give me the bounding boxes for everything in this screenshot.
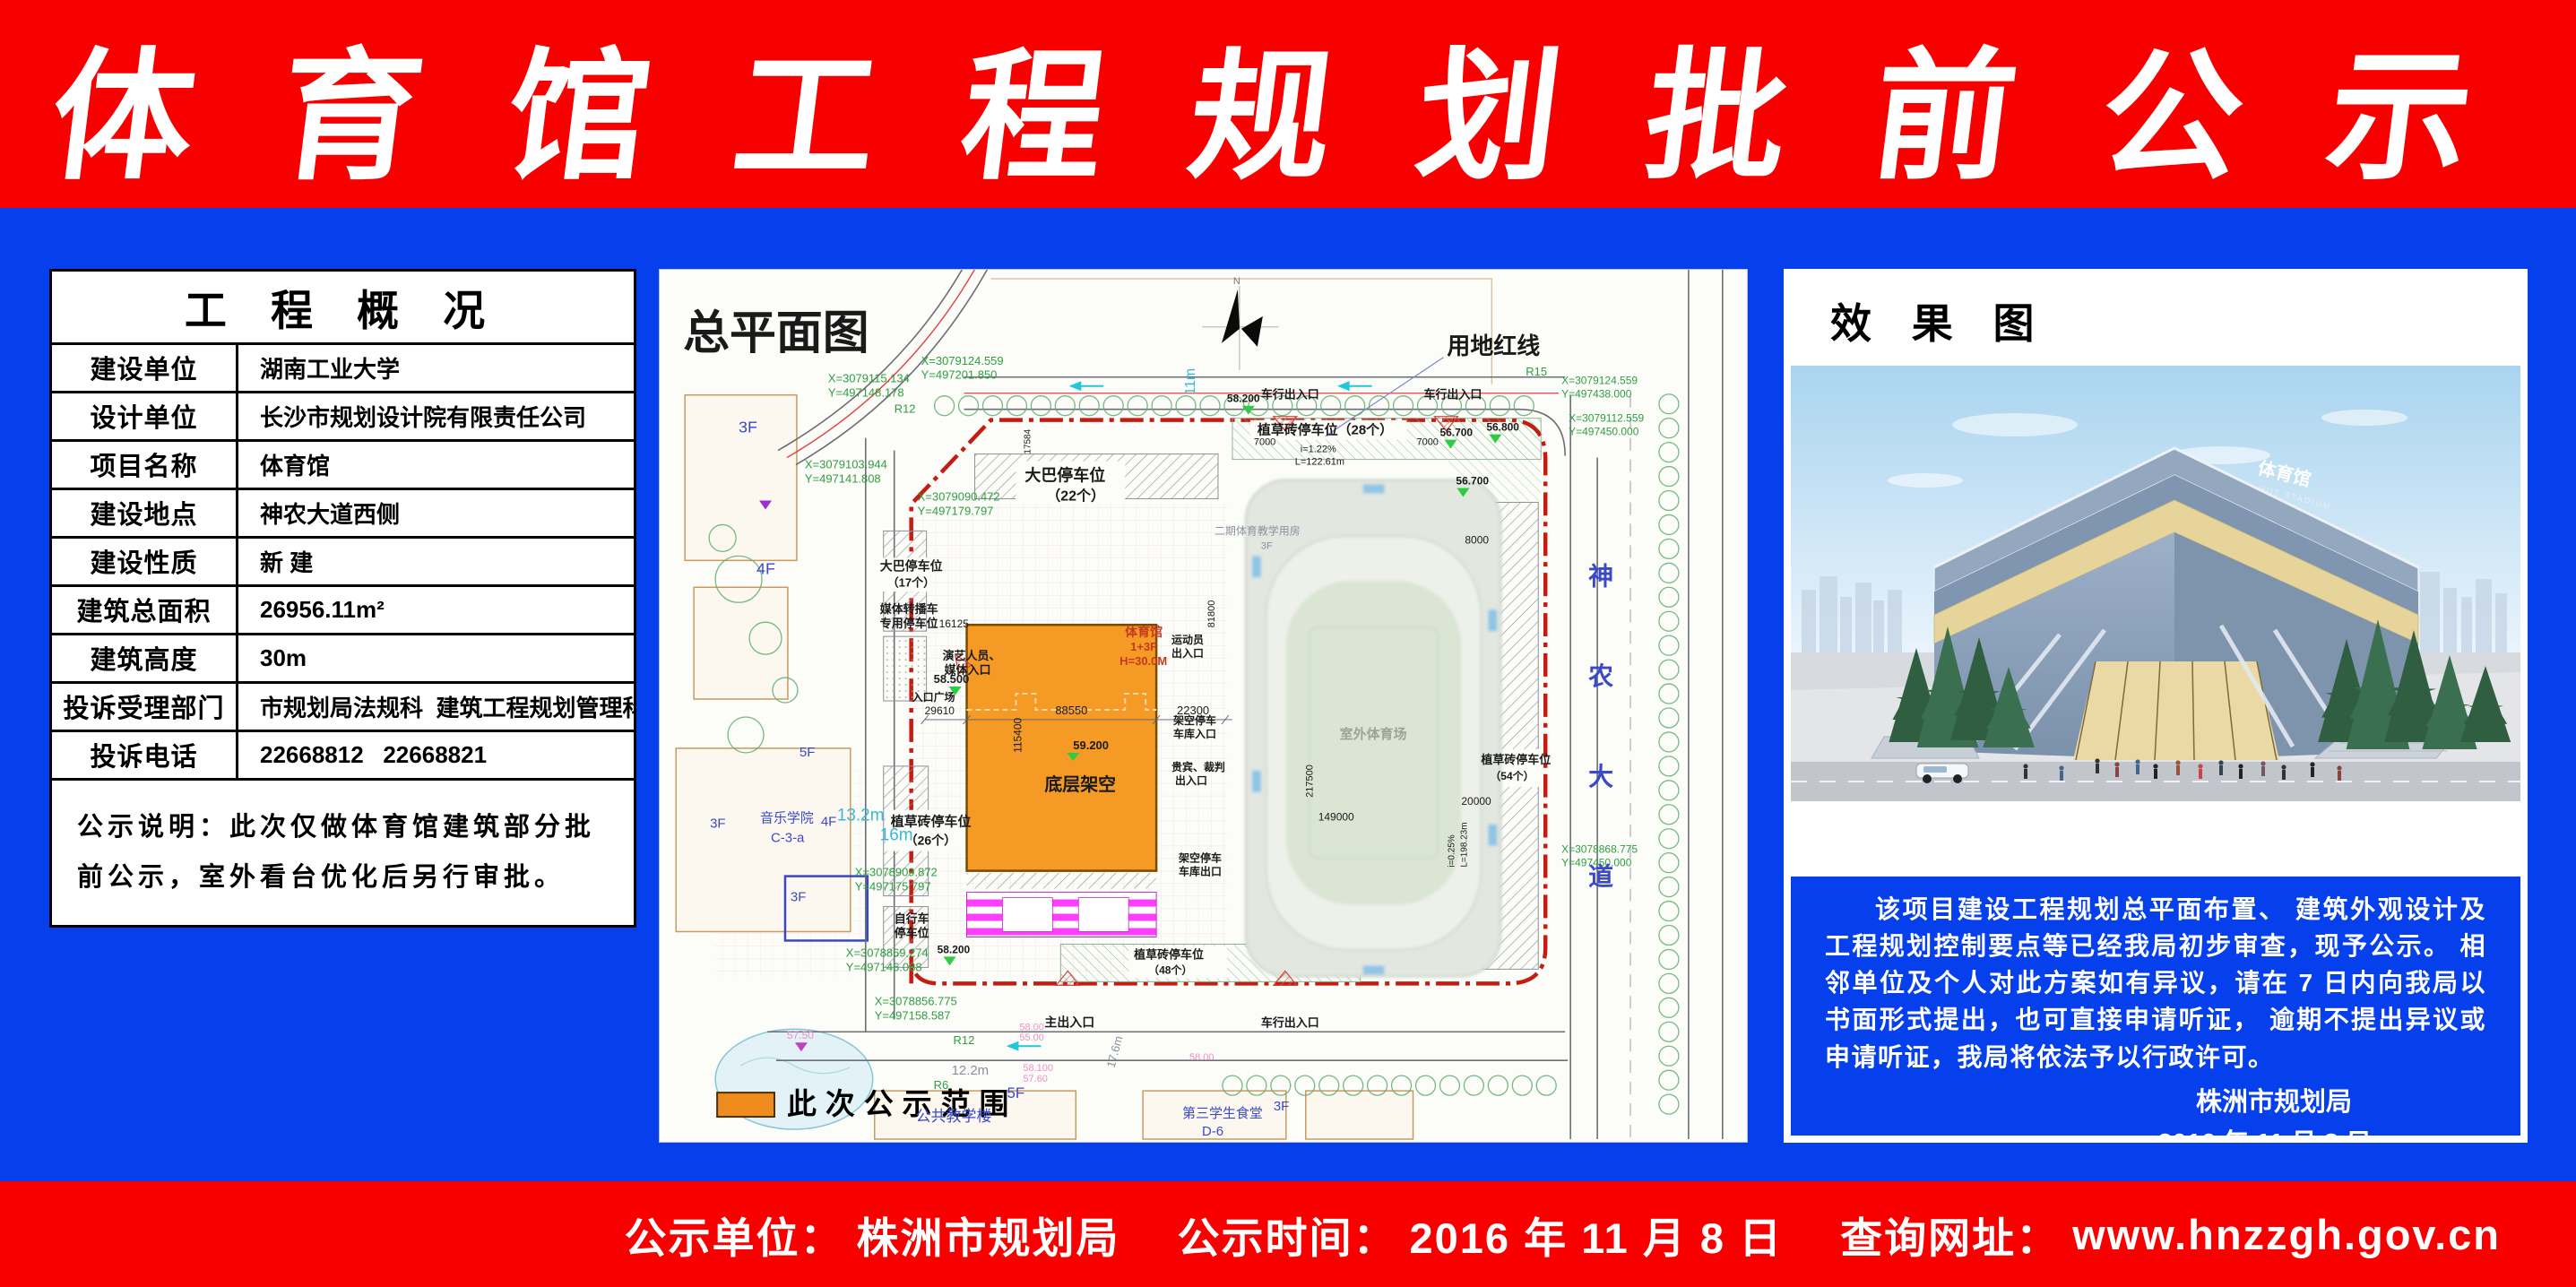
map-label: Y=497175.797 (855, 880, 931, 894)
footer-item: 查询网址：www.hnzzgh.gov.cn (1840, 1204, 2501, 1265)
footer: 公示单位：株洲市规划局公示时间：2016 年 11 月 8 日查询网址：www.… (0, 1181, 2576, 1287)
table-row: 设计单位长沙市规划设计院有限责任公司 (52, 391, 634, 439)
map-label: 58.200 (1227, 393, 1260, 405)
map-label: 车行出入口 (1261, 1015, 1319, 1029)
map-label: 贵宾、裁判 (1171, 760, 1225, 773)
map-legend-swatch (717, 1093, 774, 1117)
footer-label: 公示时间： (1177, 1204, 1396, 1265)
footer-value: 2016 年 11 月 8 日 (1409, 1204, 1783, 1265)
map-label: 16m (880, 826, 913, 845)
map-label: 81800 (1206, 600, 1217, 628)
map-label: 大巴停车位 (880, 558, 943, 573)
map-label: 5F (1007, 1084, 1024, 1101)
map-label: 车库出口 (1179, 865, 1222, 878)
map-label: 植草砖停车位 (1480, 753, 1551, 766)
map-label: 专用停车位 (880, 617, 938, 630)
map-label: 入口广场 (912, 690, 955, 704)
map-label: Y=497201.850 (921, 368, 998, 382)
footer-item: 公示单位：株洲市规划局 (624, 1204, 1119, 1265)
table-row: 投诉电话22668812 22668821 (52, 730, 634, 778)
map-label: 17584 (1023, 428, 1033, 453)
map-label: 大 (1588, 763, 1613, 790)
row-value: 体育馆 (236, 442, 634, 488)
map-label: 3F (710, 816, 725, 832)
map-label: X=3078869.274 (846, 946, 929, 959)
map-label: 3F (1261, 540, 1273, 551)
map-label: 115400 (1011, 717, 1024, 752)
row-label: 设计单位 (52, 393, 236, 439)
siteplan-drawing: 此次公示范围 总平面图用地红线NX=3079124.559Y=497201.85… (660, 270, 1747, 1142)
map-label: 自行车 (895, 912, 929, 926)
map-label: 用地红线 (1447, 333, 1540, 359)
map-label: 二期体育教学用房 (1215, 523, 1301, 537)
table-row: 投诉受理部门市规划局法规科 建筑工程规划管理科 (52, 681, 634, 730)
map-label: N (1233, 276, 1240, 287)
map-label: Y=497146.088 (846, 960, 922, 973)
map-label: X=3079090.472 (918, 489, 1000, 503)
map-label: 4F (756, 559, 775, 577)
table-row: 项目名称体育馆 (52, 439, 634, 488)
map-label: 58.00 (1019, 1022, 1043, 1032)
map-label: i=1.22% (1301, 445, 1336, 455)
row-label: 建设性质 (52, 539, 236, 584)
row-label: 建设地点 (52, 490, 236, 536)
map-label: 7000 (1417, 437, 1439, 448)
map-label: 29610 (925, 704, 955, 717)
overview-title: 工 程 概 况 (52, 272, 634, 342)
table-row: 建筑总面积26956.11m² (52, 584, 634, 633)
map-label: 3F (1274, 1099, 1289, 1114)
map-label: 58.500 (934, 672, 970, 686)
map-label: 3F (791, 890, 806, 905)
map-label: L=122.61m (1295, 457, 1344, 468)
rendering-panel: 效 果 图 (1784, 269, 2528, 1143)
footer-label: 查询网址： (1840, 1204, 2060, 1265)
banner: 体育馆工程规划批前公示 (0, 0, 2576, 208)
map-label: 20000 (1461, 795, 1491, 808)
map-label: （22个） (1046, 487, 1105, 504)
map-label: 57.50 (787, 1029, 814, 1041)
photo-margin (1791, 801, 2520, 877)
map-label: 7000 (1254, 437, 1275, 448)
map-label: Y=497450.000 (1569, 426, 1639, 438)
map-label: Y=497438.000 (1561, 388, 1632, 401)
map-label: 57.60 (1023, 1074, 1047, 1084)
row-label: 建筑高度 (52, 635, 236, 681)
map-label: （17个） (887, 575, 935, 589)
map-label: 媒体转播车 (880, 602, 938, 616)
map-label: D-6 (1202, 1124, 1223, 1139)
map-label: X=3079115.134 (828, 372, 910, 385)
map-label: 出入口 (1175, 773, 1207, 787)
overview-panel: 工 程 概 况 建设单位湖南工业大学设计单位长沙市规划设计院有限责任公司项目名称… (49, 269, 636, 928)
map-label: 3F (739, 419, 757, 436)
map-label: X=3079103.944 (805, 458, 887, 471)
signature: 株洲市规划局 (1825, 1081, 2486, 1119)
map-label: 农 (1588, 661, 1613, 690)
row-label: 投诉电话 (52, 732, 236, 778)
map-label: 56.700 (1439, 427, 1473, 439)
map-label: X=3078909.872 (855, 866, 938, 879)
adjacent-plot-line (990, 279, 1491, 384)
map-label: 音乐学院 (760, 810, 814, 826)
signature-date: 2016 年 11 月 8 日 (1825, 1122, 2486, 1136)
map-label: Y=497179.797 (918, 504, 994, 517)
map-label: 55.00 (1019, 1032, 1043, 1043)
footer-value: www.hnzzgh.gov.cn (2072, 1210, 2501, 1259)
map-label: 5F (800, 745, 815, 760)
overview-note: 公示说明：此次仅做体育馆建筑部分批前公示，室外看台优化后另行审批。 (52, 778, 634, 925)
map-label: 神 (1588, 562, 1613, 590)
map-label: 运动员 (1171, 634, 1204, 646)
map-label: i=0.25% (1447, 834, 1457, 867)
notice-paragraph: 该项目建设工程规划总平面布置、 建筑外观设计及工程规划控制要点等已经我局初步审查… (1825, 891, 2486, 1075)
map-label: H=30.0M (1119, 654, 1167, 668)
map-label: 停车位 (895, 926, 929, 939)
map-label: X=3079112.559 (1569, 412, 1644, 425)
north-arrow-icon (1202, 286, 1279, 370)
rendering-title: 效 果 图 (1791, 276, 2520, 366)
map-label: 149000 (1318, 811, 1354, 824)
map-label: 56.800 (1486, 421, 1519, 434)
row-value: 26956.11m² (236, 587, 634, 633)
map-label: 59.200 (1073, 739, 1109, 752)
map-label: R6 (934, 1078, 949, 1092)
row-value: 新 建 (236, 539, 634, 584)
map-label: 演艺人员、 (943, 649, 1001, 662)
map-label: 体育馆 (1125, 625, 1163, 639)
map-label: 4F (821, 815, 836, 830)
footer-item: 公示时间：2016 年 11 月 8 日 (1177, 1204, 1783, 1265)
map-label: 架空停车 (1172, 713, 1216, 727)
row-label: 建设单位 (52, 345, 236, 391)
table-row: 建筑高度30m (52, 633, 634, 681)
map-label: （48个） (1148, 963, 1192, 976)
map-label: 道 (1588, 862, 1613, 891)
map-label: C-3-a (771, 831, 805, 846)
row-value: 长沙市规划设计院有限责任公司 (236, 393, 634, 439)
building-illustration: 体育馆 HUT STADIUM (1791, 366, 2520, 801)
map-label: Y=497158.587 (875, 1008, 951, 1022)
map-label: 车库入口 (1173, 727, 1216, 740)
table-row: 建设单位湖南工业大学 (52, 342, 634, 391)
map-label: 217500 (1305, 764, 1316, 798)
row-label: 项目名称 (52, 442, 236, 488)
map-label: X=3078856.775 (875, 994, 957, 1007)
banner-title: 体育馆工程规划批前公示 (5, 2, 2571, 207)
row-label: 投诉受理部门 (52, 684, 236, 730)
map-label: 58.100 (1023, 1063, 1053, 1074)
map-label: 12.2m (952, 1063, 990, 1078)
map-label: R12 (954, 1033, 975, 1047)
map-label: （54个） (1490, 769, 1534, 782)
map-label: 第三学生食堂 (1182, 1105, 1263, 1121)
map-label: 植草砖停车位（28个） (1257, 422, 1393, 438)
map-label: 8000 (1465, 533, 1489, 546)
map-label: 架空停车 (1178, 851, 1222, 865)
row-value: 30m (236, 635, 634, 681)
footer-label: 公示单位： (624, 1204, 843, 1265)
map-label: X=3078868.775 (1561, 843, 1638, 856)
map-label: R12 (895, 402, 916, 416)
map-label: 植草砖停车位 (1133, 947, 1204, 961)
siteplan-panel: 此次公示范围 总平面图用地红线NX=3079124.559Y=497201.85… (659, 269, 1748, 1143)
map-label: R15 (1526, 365, 1547, 378)
map-label: Y=497148.178 (828, 386, 904, 400)
table-row: 建设性质新 建 (52, 536, 634, 584)
map-label: Y=497141.808 (805, 472, 881, 486)
map-label: X=3079124.559 (921, 354, 1004, 367)
map-label: 58.00 (1189, 1052, 1214, 1063)
footer-value: 株洲市规划局 (856, 1204, 1119, 1265)
map-label: 底层架空 (1044, 773, 1116, 795)
notice-board: 体育馆工程规划批前公示 工 程 概 况 建设单位湖南工业大学设计单位长沙市规划设… (0, 0, 2576, 1287)
row-value: 神农大道西侧 (236, 490, 634, 536)
row-value: 市规划局法规科 建筑工程规划管理科 (236, 684, 634, 730)
map-label: 总平面图 (683, 307, 869, 358)
row-value: 22668812 22668821 (236, 732, 634, 778)
notice-text-box: 该项目建设工程规划总平面布置、 建筑外观设计及工程规划控制要点等已经我局初步审查… (1791, 877, 2520, 1136)
map-label: 88550 (1055, 704, 1087, 717)
map-label: 1+3F (1130, 640, 1157, 653)
table-row: 建设地点神农大道西侧 (52, 488, 634, 536)
map-label: 出入口 (1171, 646, 1204, 660)
map-label: L=198.23m (1459, 822, 1469, 867)
map-label: 11m (1183, 368, 1198, 395)
overview-table: 建设单位湖南工业大学设计单位长沙市规划设计院有限责任公司项目名称体育馆建设地点神… (52, 342, 634, 778)
map-label: 主出入口 (1044, 1015, 1094, 1029)
map-label: 13.2m (837, 807, 885, 825)
map-label: 56.700 (1456, 475, 1489, 488)
map-label: 车行出入口 (1423, 388, 1482, 402)
map-label: 大巴停车位 (1024, 466, 1105, 485)
map-label: 公共教学楼 (916, 1108, 992, 1125)
map-label: 16125 (939, 618, 970, 630)
row-value: 湖南工业大学 (236, 345, 634, 391)
map-label: 17.6m (1104, 1034, 1126, 1069)
row-label: 建筑总面积 (52, 587, 236, 633)
map-label: X=3079124.559 (1561, 375, 1638, 387)
map-label: 车行出入口 (1261, 388, 1319, 402)
map-label: 58.200 (938, 943, 971, 955)
rendering-photo: 体育馆 HUT STADIUM (1791, 366, 2520, 801)
map-label: 室外体育场 (1340, 726, 1407, 742)
